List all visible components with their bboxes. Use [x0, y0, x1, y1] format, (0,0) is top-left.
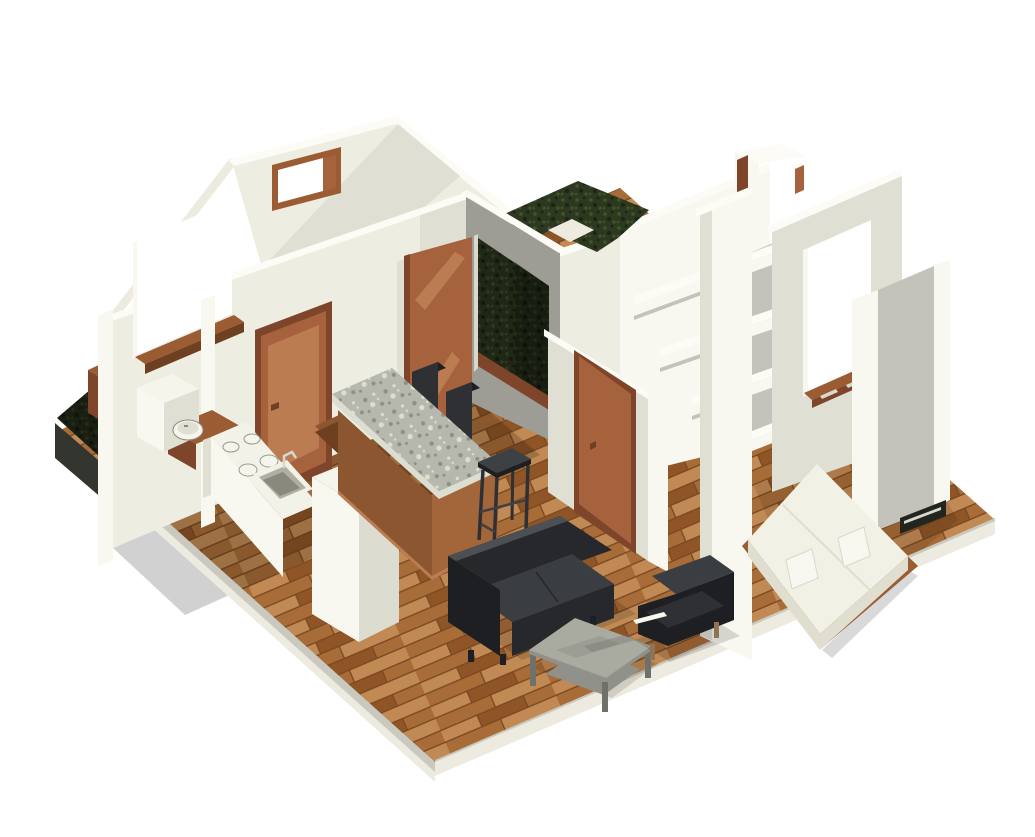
clerestory-window-inner — [323, 155, 336, 191]
sofa-leg — [500, 654, 506, 665]
door-a-panel-inset — [268, 325, 319, 474]
right-wall-face — [878, 266, 934, 530]
cooktop-burner — [223, 442, 239, 452]
middle-wall-end-cap — [648, 382, 668, 572]
sink-drain — [184, 425, 188, 427]
courtyard-window-frame — [474, 234, 478, 372]
right-wall-cap-right — [934, 260, 950, 508]
right-wall-cap-left — [852, 290, 878, 540]
cooktop-burner — [244, 434, 260, 444]
stool-leg — [526, 464, 528, 530]
render-viewport — [0, 0, 1035, 837]
counter-end — [203, 437, 211, 498]
floorplan-3d-view — [0, 0, 1035, 837]
armchair-leg — [650, 644, 655, 660]
sofa-leg — [468, 650, 474, 662]
table-leg-front — [530, 654, 536, 686]
vessel-sink-bowl — [178, 422, 199, 435]
rooftop-box-edge — [795, 165, 804, 194]
armchair-leg — [714, 622, 719, 638]
nw-wall-end-cap — [98, 310, 113, 566]
bathroom-window-frame — [133, 241, 137, 359]
bedroom-window-frame — [803, 248, 808, 397]
table-leg-front — [602, 682, 608, 712]
